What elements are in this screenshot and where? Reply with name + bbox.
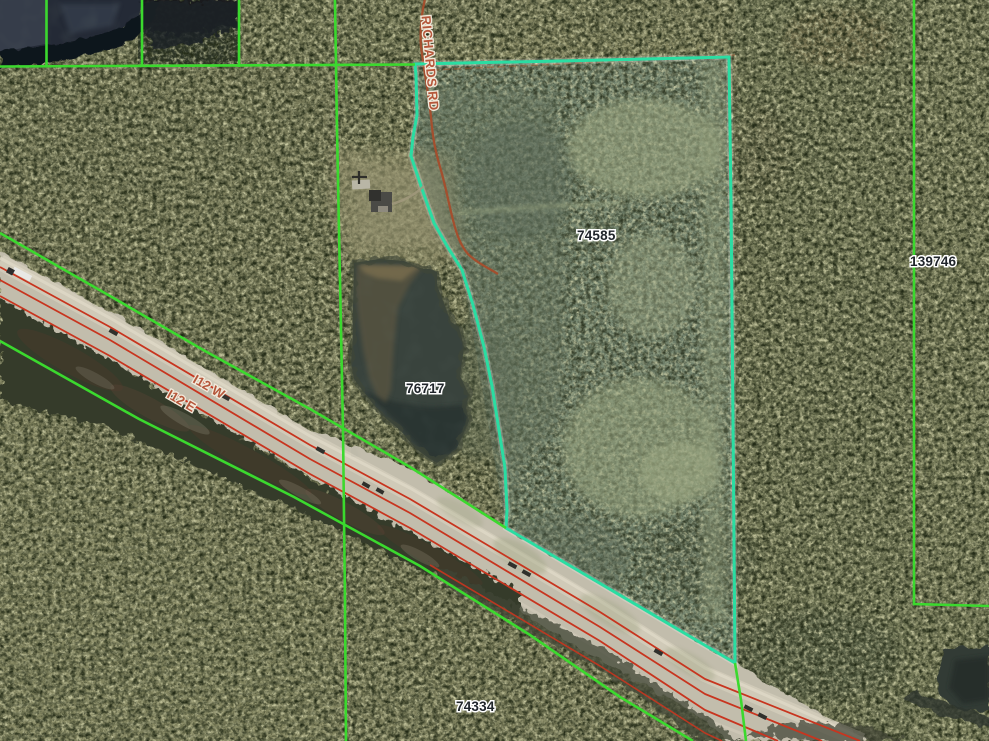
svg-text:74585: 74585	[577, 228, 616, 243]
svg-text:139746: 139746	[910, 254, 957, 269]
svg-text:74334: 74334	[456, 699, 495, 714]
svg-text:76717: 76717	[406, 381, 445, 396]
